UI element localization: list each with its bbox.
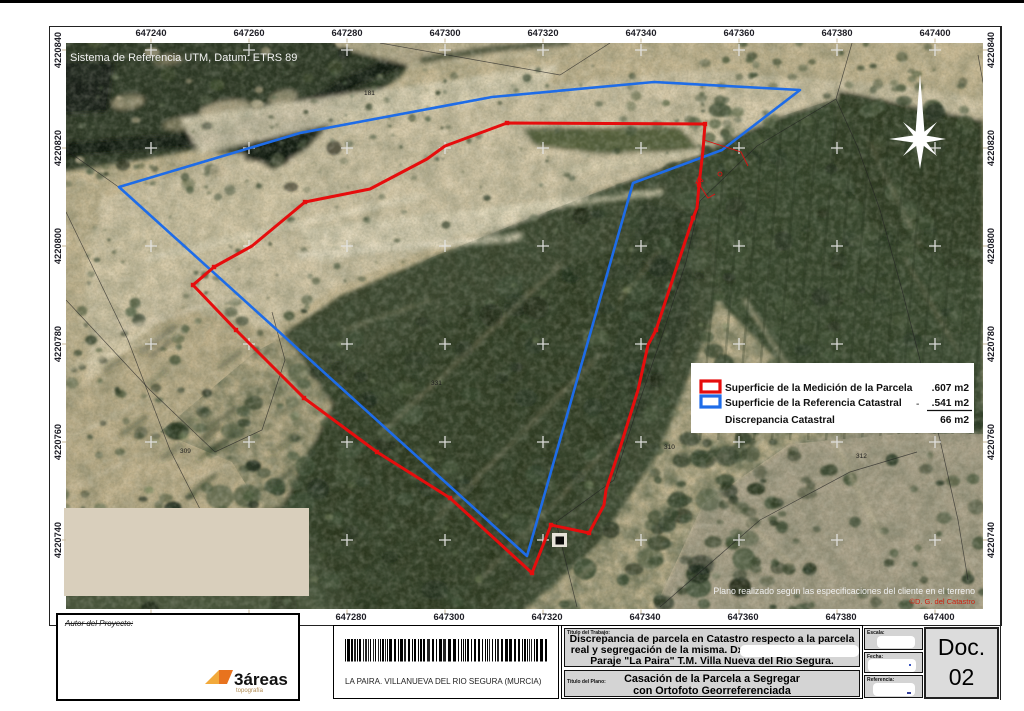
svg-text:LA PAIRA. VILLANUEVA DEL RIO S: LA PAIRA. VILLANUEVA DEL RIO SEGURA (MUR… [345, 677, 542, 686]
